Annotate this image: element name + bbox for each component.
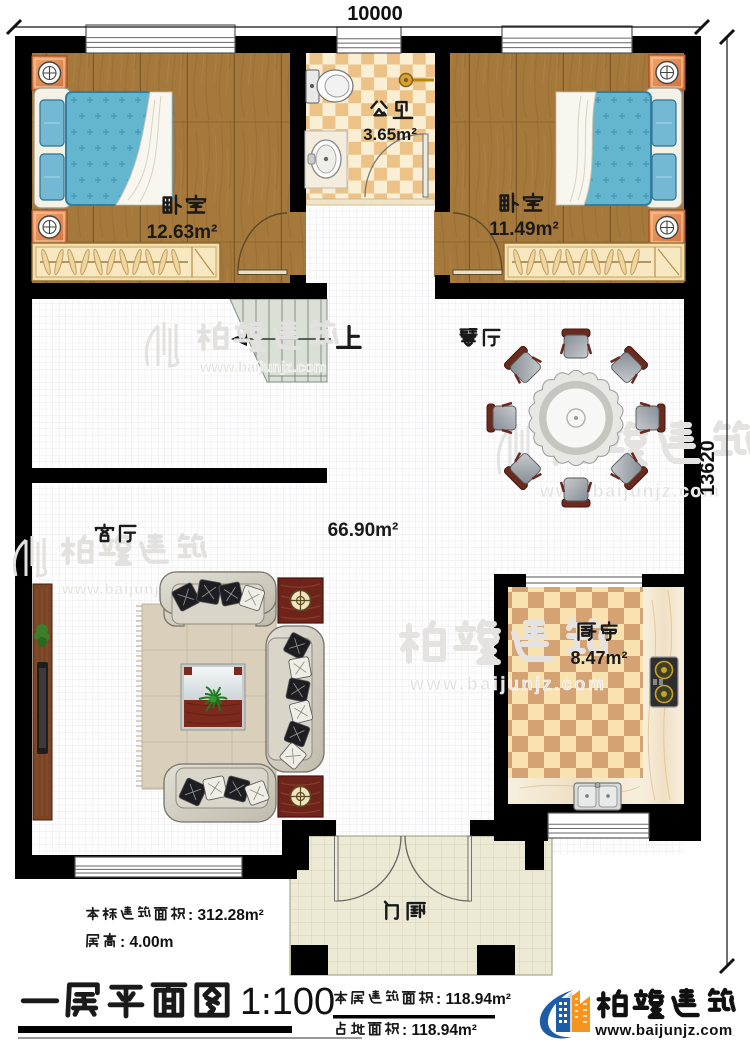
svg-text:www.baijunjz.com: www.baijunjz.com	[409, 674, 605, 694]
svg-text:: 312.28m²: : 312.28m²	[188, 907, 264, 924]
svg-text:10000: 10000	[347, 3, 403, 25]
svg-text:www.baijunjz.com: www.baijunjz.com	[199, 359, 328, 376]
svg-text:12.63m²: 12.63m²	[147, 222, 218, 243]
svg-text:11.49m²: 11.49m²	[489, 219, 559, 240]
svg-text:: 4.00m: : 4.00m	[120, 934, 173, 951]
svg-text:66.90m²: 66.90m²	[328, 520, 399, 541]
svg-text:: 118.94m²: : 118.94m²	[402, 1022, 477, 1039]
svg-text:8.47m²: 8.47m²	[570, 648, 627, 668]
svg-text:: 118.94m²: : 118.94m²	[436, 991, 511, 1008]
svg-text:www.baijunjz.com: www.baijunjz.com	[594, 1022, 732, 1039]
svg-text:1:100: 1:100	[240, 981, 335, 1023]
svg-text:13620: 13620	[697, 440, 719, 496]
svg-text:3.65m²: 3.65m²	[363, 125, 417, 144]
